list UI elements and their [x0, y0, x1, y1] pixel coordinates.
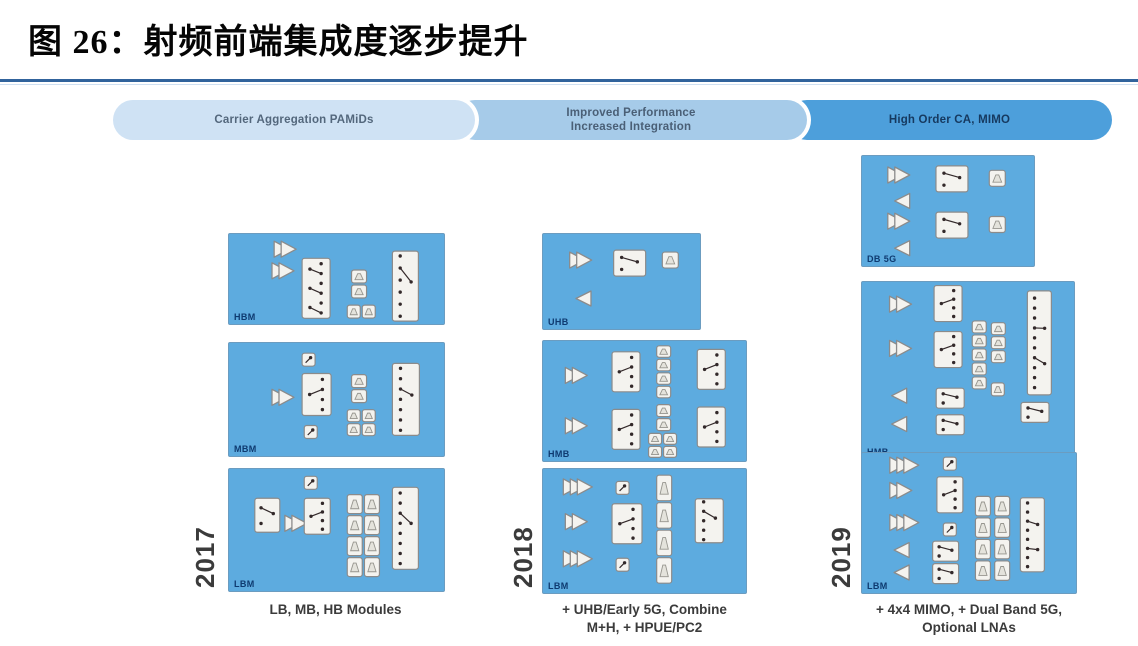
component-icon	[304, 425, 317, 438]
module-schematic	[543, 234, 700, 329]
year-label-2018: 2018	[508, 522, 539, 592]
switch-icon	[933, 541, 959, 561]
module-label: UHB	[548, 317, 569, 327]
filter-bank-icon	[347, 305, 375, 318]
module-box-hbm: HBM	[228, 233, 445, 325]
switch-icon	[934, 286, 962, 322]
switch-icon	[302, 374, 331, 416]
component-icon	[616, 558, 629, 571]
column-caption: + 4x4 MIMO, + Dual Band 5G,Optional LNAs	[843, 601, 1095, 637]
module-label: DB 5G	[867, 254, 897, 264]
rf-frontend-roadmap-diagram: Carrier Aggregation PAMiDsImproved Perfo…	[0, 0, 1138, 646]
caption-line: + 4x4 MIMO, + Dual Band 5G,	[843, 601, 1095, 619]
pa-icon	[565, 514, 587, 530]
pa-icon	[890, 457, 919, 473]
switch-icon	[612, 352, 640, 392]
antenna-switch-icon	[1020, 498, 1044, 572]
switch-icon	[933, 564, 959, 584]
module-label: LBM	[234, 579, 255, 589]
year-label-2019: 2019	[826, 522, 857, 592]
antenna-switch-icon	[392, 363, 419, 435]
switch-icon	[936, 212, 968, 238]
antenna-switch-icon	[392, 251, 418, 321]
filter-bank-icon	[975, 496, 990, 580]
module-label: HBM	[234, 312, 256, 322]
filter-icon	[989, 217, 1005, 233]
pa-icon	[565, 418, 587, 434]
filter-bank-icon	[649, 433, 677, 457]
pa-icon	[274, 241, 296, 257]
pa-icon	[570, 252, 592, 268]
module-schematic	[862, 282, 1074, 459]
column-caption: LB, MB, HB Modules	[218, 601, 453, 619]
module-label: LBM	[867, 581, 888, 591]
module-schematic	[543, 341, 746, 461]
pa-icon	[890, 340, 912, 356]
pa-icon	[888, 167, 910, 183]
pa-icon	[890, 515, 919, 531]
module-schematic	[229, 234, 444, 324]
lna-icon	[895, 193, 910, 208]
filter-bank-icon	[972, 321, 986, 389]
pa-icon	[890, 482, 912, 498]
banner-label: High Order CA, MIMO	[889, 113, 1010, 127]
filter-icon	[352, 375, 367, 403]
banner-label: Increased Integration	[571, 120, 692, 134]
component-icon	[304, 476, 317, 489]
module-label: MBM	[234, 444, 257, 454]
filter-bank-icon	[657, 475, 672, 583]
module-box-db-5g: DB 5G	[861, 155, 1035, 267]
figure-page: 图 26：射频前端集成度逐步提升 Carrier Aggregation PAM…	[0, 0, 1138, 646]
banner-stage-2: Improved PerformanceIncreased Integratio…	[455, 100, 807, 140]
module-schematic	[229, 469, 444, 591]
column-caption: + UHB/Early 5G, CombineM+H, + HPUE/PC2	[527, 601, 762, 637]
switch-icon	[614, 250, 646, 276]
module-box-hmb: HMB	[542, 340, 747, 462]
antenna-switch-icon	[695, 499, 723, 543]
module-box-lbm: LBM	[542, 468, 747, 594]
pa-icon	[888, 213, 910, 229]
switch-icon	[612, 409, 640, 449]
banner-label: Improved Performance	[566, 106, 695, 120]
lna-icon	[576, 291, 591, 306]
switch-icon	[697, 349, 725, 389]
switch-icon	[612, 504, 642, 544]
filter-bank-icon	[347, 495, 362, 577]
filter-bank-icon	[657, 346, 671, 398]
switch-icon	[697, 407, 725, 447]
switch-icon	[255, 498, 280, 532]
module-box-hmb: HMB	[861, 281, 1075, 460]
lna-icon	[894, 543, 909, 558]
switch-matrix-icon	[302, 258, 330, 318]
switch-icon	[937, 477, 963, 513]
filter-bank-icon	[347, 410, 375, 436]
component-icon	[943, 523, 956, 536]
filter-icon	[352, 270, 367, 298]
module-schematic	[229, 343, 444, 456]
component-icon	[302, 353, 315, 366]
switch-icon	[936, 415, 964, 435]
lna-icon	[895, 241, 910, 256]
module-box-lbm: LBM	[228, 468, 445, 592]
caption-line: M+H, + HPUE/PC2	[527, 619, 762, 637]
switch-icon	[304, 498, 330, 534]
filter-bank-icon	[657, 405, 671, 431]
antenna-switch-icon	[1027, 291, 1051, 395]
lna-icon	[894, 565, 909, 580]
filter-icon	[991, 383, 1004, 396]
banner-stage-3: High Order CA, MIMO	[787, 100, 1112, 140]
module-label: LBM	[548, 581, 569, 591]
component-icon	[943, 457, 956, 470]
lna-icon	[892, 388, 907, 403]
module-label: HMB	[548, 449, 570, 459]
component-icon	[616, 481, 629, 494]
switch-icon	[1021, 402, 1049, 422]
module-schematic	[862, 156, 1034, 266]
caption-line: Optional LNAs	[843, 619, 1095, 637]
banner-stage-1: Carrier Aggregation PAMiDs	[113, 100, 475, 140]
filter-bank-icon	[995, 496, 1010, 580]
filter-icon	[989, 170, 1005, 186]
module-schematic	[862, 453, 1076, 593]
pa-icon	[272, 263, 294, 279]
switch-icon	[936, 388, 964, 408]
switch-icon	[936, 166, 968, 192]
antenna-switch-icon	[392, 487, 418, 569]
pa-icon	[563, 551, 592, 567]
caption-line: LB, MB, HB Modules	[218, 601, 453, 619]
banner-label: Carrier Aggregation PAMiDs	[214, 113, 373, 127]
module-box-mbm: MBM	[228, 342, 445, 457]
switch-icon	[934, 332, 962, 368]
filter-bank-icon	[364, 495, 379, 577]
year-label-2017: 2017	[190, 524, 221, 590]
pa-icon	[272, 389, 294, 405]
pa-icon	[563, 479, 592, 495]
pa-icon	[285, 515, 307, 531]
pa-icon	[890, 296, 912, 312]
module-schematic	[543, 469, 746, 593]
pa-icon	[565, 367, 587, 383]
module-box-uhb: UHB	[542, 233, 701, 330]
caption-line: + UHB/Early 5G, Combine	[527, 601, 762, 619]
filter-bank-icon	[991, 323, 1005, 363]
module-box-lbm: LBM	[861, 452, 1077, 594]
lna-icon	[892, 417, 907, 432]
filter-icon	[662, 252, 678, 268]
